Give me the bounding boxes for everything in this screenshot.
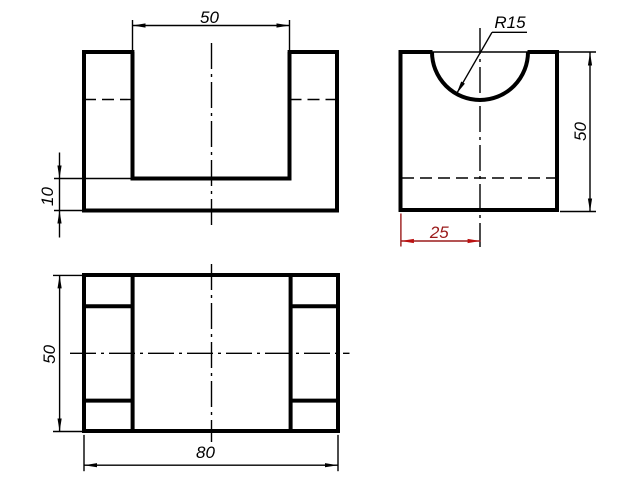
svg-text:50: 50	[200, 8, 219, 27]
svg-text:80: 80	[196, 443, 215, 462]
svg-text:50: 50	[40, 344, 59, 363]
svg-text:50: 50	[571, 122, 590, 141]
svg-text:10: 10	[38, 187, 57, 206]
svg-text:25: 25	[429, 223, 449, 242]
svg-text:R15: R15	[494, 13, 526, 32]
